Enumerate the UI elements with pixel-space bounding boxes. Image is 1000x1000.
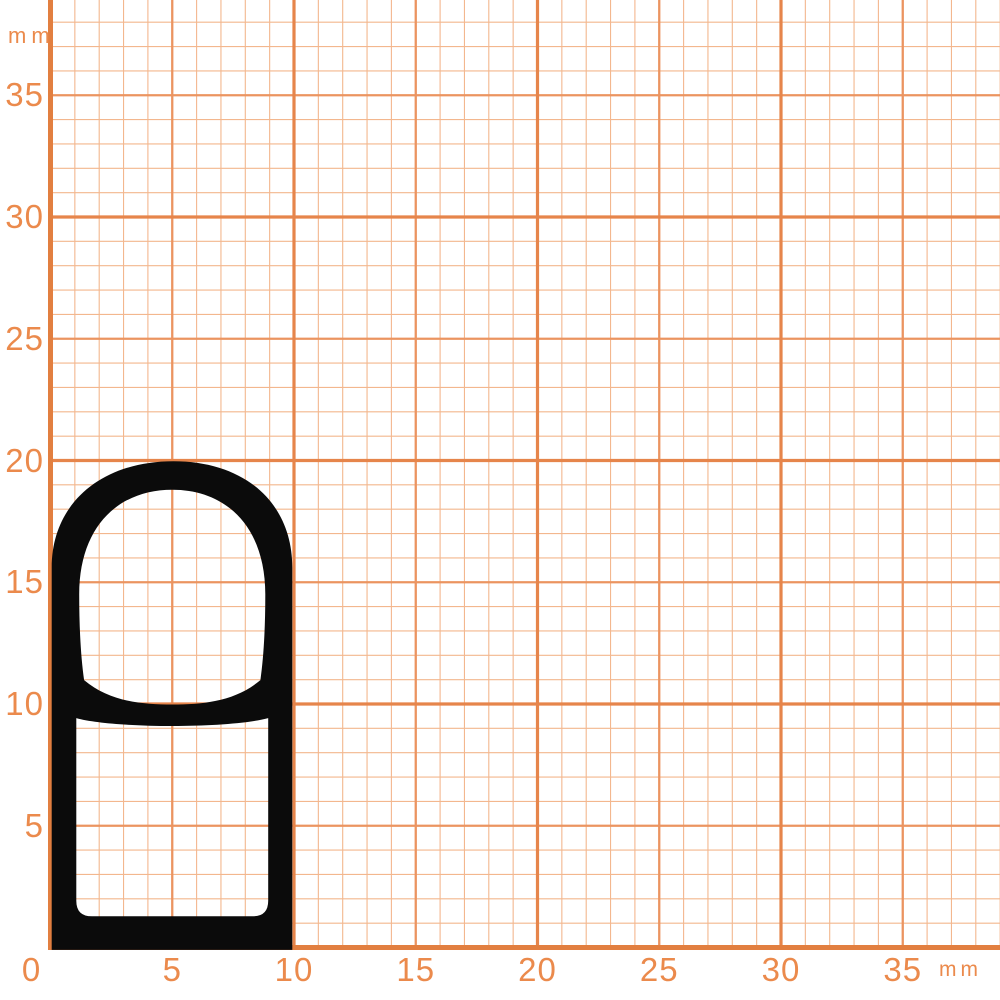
- x-tick-label: 0: [22, 951, 41, 989]
- x-tick-label: 20: [518, 951, 557, 989]
- x-tick-label: 25: [640, 951, 679, 989]
- y-tick-label: 20: [0, 442, 44, 480]
- y-tick-label: 25: [0, 320, 44, 358]
- y-axis-unit-label: mm: [8, 24, 55, 48]
- x-tick-label: 15: [396, 951, 435, 989]
- y-tick-label: 15: [0, 563, 44, 601]
- x-tick-label: 35: [883, 951, 922, 989]
- graph-paper-page: mm mm 051015202530353530252015105: [0, 0, 1000, 1000]
- x-tick-label: 10: [275, 951, 314, 989]
- y-tick-label: 30: [0, 198, 44, 236]
- x-axis-unit-label: mm: [939, 958, 982, 982]
- profile-drawing: [0, 0, 1000, 1000]
- y-tick-label: 10: [0, 685, 44, 723]
- y-tick-label: 5: [0, 807, 44, 845]
- x-tick-label: 30: [762, 951, 801, 989]
- y-tick-label: 35: [0, 76, 44, 114]
- profile-shape: [52, 461, 293, 950]
- x-tick-label: 5: [163, 951, 182, 989]
